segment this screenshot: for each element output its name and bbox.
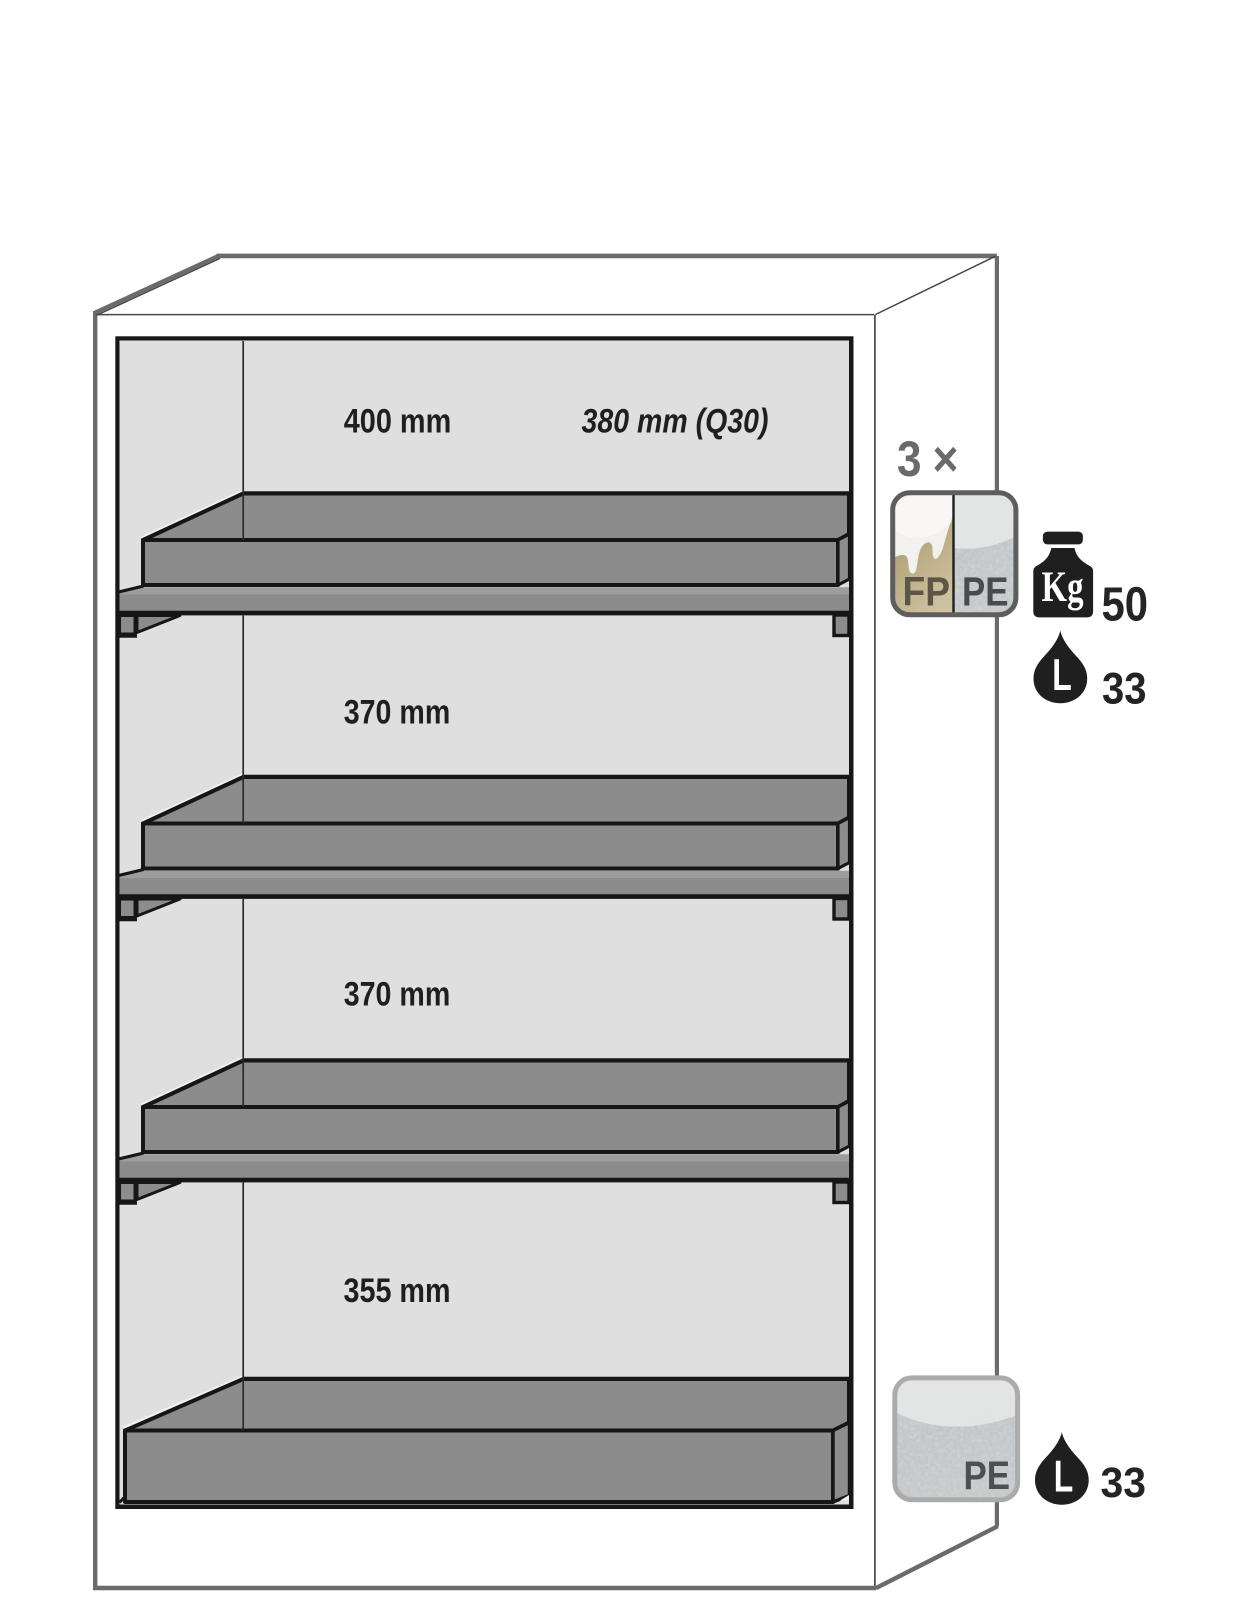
svg-text:PE: PE <box>964 1454 1011 1498</box>
svg-text:355 mm: 355 mm <box>344 1272 451 1310</box>
svg-text:Kg: Kg <box>1042 564 1084 611</box>
svg-text:3: 3 <box>897 431 922 487</box>
svg-text:33: 33 <box>1101 1459 1147 1507</box>
svg-text:FP: FP <box>903 569 951 615</box>
svg-text:380 mm (Q30): 380 mm (Q30) <box>582 403 769 441</box>
svg-text:50: 50 <box>1102 579 1149 632</box>
svg-text:L: L <box>1052 651 1072 700</box>
svg-text:L: L <box>1054 1453 1074 1502</box>
svg-text:370 mm: 370 mm <box>344 694 451 732</box>
svg-text:PE: PE <box>962 569 1009 615</box>
svg-text:370 mm: 370 mm <box>344 976 451 1014</box>
svg-text:×: × <box>933 431 959 487</box>
svg-text:400 mm: 400 mm <box>344 403 452 441</box>
svg-text:33: 33 <box>1102 665 1147 714</box>
